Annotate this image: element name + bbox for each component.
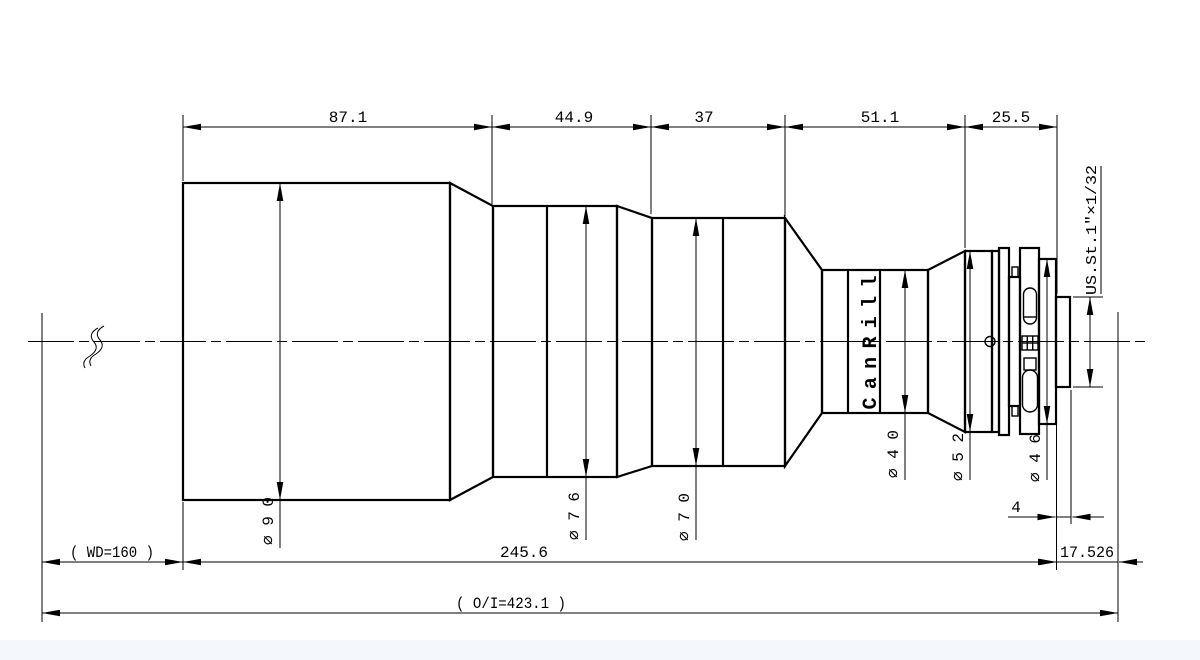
axis-break-squiggle xyxy=(84,328,98,368)
clamp-slot-bottom xyxy=(1023,370,1038,412)
thread-spec-label: US.St.1″×1/32 xyxy=(1084,165,1101,295)
dim-text-37: 37 xyxy=(694,109,713,127)
dim-text-d40: ⌀40 xyxy=(885,430,903,478)
dim-text-d70: ⌀70 xyxy=(676,493,694,541)
dim-text-25-5: 25.5 xyxy=(992,109,1030,127)
dim-text-wd: ( WD=160 ) xyxy=(70,544,154,562)
lens-drawing-canvas: 87.1 44.9 37 51.1 25.5 ⌀90 ⌀76 ⌀70 ⌀40 ⌀… xyxy=(0,0,1200,660)
axis-break-squiggle xyxy=(90,326,104,366)
dim-text-d76: ⌀76 xyxy=(566,492,584,540)
dim-text-44-9: 44.9 xyxy=(555,109,593,127)
extension-lines xyxy=(42,115,1103,622)
dim-text-87-1: 87.1 xyxy=(329,109,367,127)
bottom-strip xyxy=(0,640,1200,660)
dim-text-245-6: 245.6 xyxy=(500,544,548,562)
dim-text-d52: ⌀52 xyxy=(950,433,968,481)
dimension-lines xyxy=(42,127,1143,613)
dim-text-d46: ⌀46 xyxy=(1027,434,1045,482)
dim-text-oi: ( O/I=423.1 ) xyxy=(456,595,566,613)
lens-mechanical-drawing: 87.1 44.9 37 51.1 25.5 ⌀90 ⌀76 ⌀70 ⌀40 ⌀… xyxy=(0,0,1200,660)
clamp-slot-top xyxy=(1024,288,1037,324)
brand-label: CanRill xyxy=(860,274,883,410)
dim-text-17-526: 17.526 xyxy=(1060,544,1114,562)
dimension-texts: 87.1 44.9 37 51.1 25.5 ⌀90 ⌀76 ⌀70 ⌀40 ⌀… xyxy=(70,109,1114,613)
neck-tab-bottom xyxy=(1012,406,1018,416)
optical-axis xyxy=(28,312,1148,622)
dim-text-4: 4 xyxy=(1011,499,1021,517)
dim-text-51-1: 51.1 xyxy=(861,109,899,127)
clamp-slot-bottom-square xyxy=(1024,358,1036,370)
neck-tab-top xyxy=(1012,267,1018,277)
dim-text-d90: ⌀90 xyxy=(260,497,278,545)
